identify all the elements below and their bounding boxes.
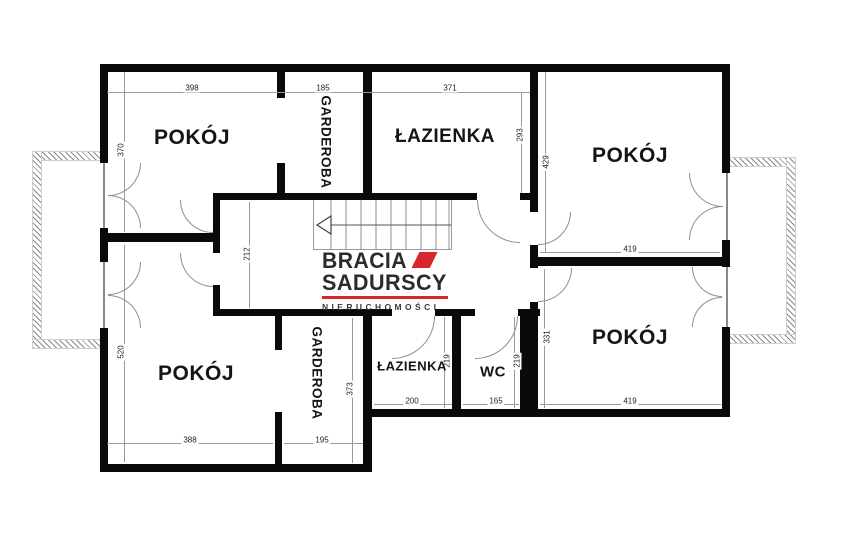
logo-flag-icon: [412, 252, 438, 268]
dimension-label: 388: [181, 436, 198, 445]
logo-text-bracia: BRACIA: [322, 250, 407, 271]
wall-bath-bottom-left: [363, 309, 372, 472]
staircase: [313, 200, 452, 250]
door-swing-arc: [180, 200, 213, 233]
wall-bottom-right: [363, 409, 730, 417]
wall-room-tr-bottom: [530, 257, 730, 266]
dimension-label: 293: [516, 126, 525, 143]
dimension-label: 212: [243, 245, 252, 262]
logo-text-nieruchomosci: NIERUCHOMOŚCI: [322, 302, 454, 312]
balcony-right-hatch-bottom: [730, 335, 795, 343]
window-glass-line: [103, 163, 105, 228]
window-swing-arc: [689, 206, 723, 240]
dimension-label: 370: [117, 141, 126, 158]
window-swing-arc: [689, 173, 723, 207]
dimension-label: 185: [314, 84, 331, 93]
room-label-lazienka-top: ŁAZIENKA: [395, 126, 495, 148]
room-label-wc: WC: [480, 364, 506, 381]
wall-wardrobe-bottom-divider: [275, 412, 282, 464]
door-swing-arc: [477, 200, 520, 243]
balcony-left-hatch-side: [33, 152, 41, 348]
wall-hall-right-segment: [530, 64, 538, 212]
wall-left-segment: [100, 328, 108, 472]
agency-logo: BRACIA SADURSCY NIERUCHOMOŚCI: [322, 250, 454, 312]
window-glass-line: [103, 262, 105, 328]
wall-top: [100, 64, 730, 72]
floor-plan: 398 185 371 370 429 293 212 419 520 388 …: [0, 0, 860, 537]
room-label-pokoj-top-right: POKÓJ: [592, 144, 668, 168]
wall-right-segment: [722, 327, 730, 417]
balcony-left-hatch-top: [33, 152, 100, 160]
balcony-left-hatch-bottom: [33, 340, 100, 348]
wall-wc-right: [520, 309, 538, 409]
staircase-drawing: [314, 200, 453, 250]
door-swing-arc: [392, 316, 435, 359]
dimension-label: 419: [621, 397, 638, 406]
dimension-label: 419: [621, 245, 638, 254]
logo-text-sadurscy: SADURSCY: [322, 271, 451, 294]
wall-wardrobe-bath-divider: [363, 64, 372, 200]
dimension-label: 200: [403, 397, 420, 406]
balcony-right-hatch-top: [730, 158, 795, 166]
stairs-direction-arrow: [317, 216, 331, 234]
wall-left-segment: [100, 64, 108, 163]
wall-left-rooms-divider: [100, 233, 220, 242]
dimension-label: 373: [346, 380, 355, 397]
window-swing-arc: [692, 267, 722, 297]
dimension-label: 165: [487, 397, 504, 406]
window-glass-line: [726, 173, 728, 240]
wall-hall-left-segment: [213, 200, 220, 253]
dimension-label: 429: [542, 153, 551, 170]
wall-hall-top: [213, 193, 477, 200]
dimension-label: 195: [313, 436, 330, 445]
wall-bottom-left: [100, 464, 372, 472]
door-swing-arc: [538, 212, 571, 245]
window-swing-arc: [692, 297, 722, 327]
balcony-right-hatch-side: [787, 158, 795, 343]
room-label-garderoba-top: GARDEROBA: [319, 95, 334, 188]
room-label-garderoba-bottom: GARDEROBA: [310, 326, 325, 419]
room-label-pokoj-bottom-right: POKÓJ: [592, 326, 668, 350]
wall-wardrobe-bottom-divider: [275, 316, 282, 350]
room-label-lazienka-bottom: ŁAZIENKA: [377, 359, 447, 374]
logo-red-rule: [322, 296, 448, 299]
dimension-label: 520: [117, 343, 126, 360]
window-glass-line: [726, 267, 728, 327]
dimension-label: 331: [543, 328, 552, 345]
dimension-label: 398: [183, 84, 200, 93]
room-label-pokoj-bottom-left: POKÓJ: [158, 362, 234, 386]
wall-bath-wc-divider: [452, 309, 461, 409]
dimension-label: 219: [513, 352, 522, 369]
dimension-label: 371: [441, 84, 458, 93]
door-swing-arc: [180, 253, 213, 287]
wall-right-segment: [722, 64, 730, 173]
room-label-pokoj-top-left: POKÓJ: [154, 126, 230, 150]
